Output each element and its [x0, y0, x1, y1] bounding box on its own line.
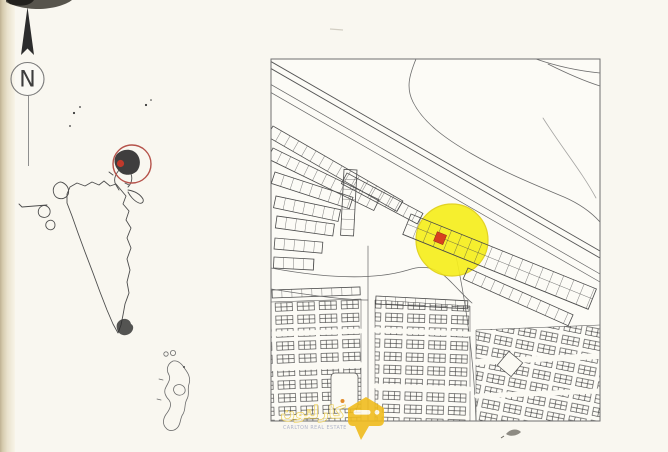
watermark-latin-name: CARLTON REAL ESTATE: [283, 425, 347, 431]
stray-mark: [330, 29, 343, 30]
north-compass: N: [11, 7, 44, 166]
bahrain-overview-map: [19, 99, 190, 430]
island-outline: [67, 181, 131, 333]
map-flyspeck-dots: [69, 99, 152, 127]
nw-islands: [38, 182, 68, 230]
hawar-islands: [157, 350, 190, 430]
site-plan: [267, 59, 600, 421]
causeway-line: [19, 204, 47, 207]
stray-smudge: [501, 430, 521, 438]
watermark-accent-dot: [341, 399, 345, 403]
scanned-location-map-page: N: [0, 0, 668, 452]
watermark: كارلتون CARLTON REAL ESTATE: [280, 397, 384, 440]
scan-gutter-shadow: [0, 0, 15, 452]
south-blob: [117, 319, 134, 335]
compass-label: N: [19, 68, 35, 93]
location-marker-dot: [117, 160, 124, 167]
north-arrow-icon: [21, 7, 34, 55]
hidd-arm: [128, 190, 143, 203]
map-canvas: N: [0, 0, 668, 452]
watermark-arabic-name: كارلتون: [280, 403, 345, 423]
